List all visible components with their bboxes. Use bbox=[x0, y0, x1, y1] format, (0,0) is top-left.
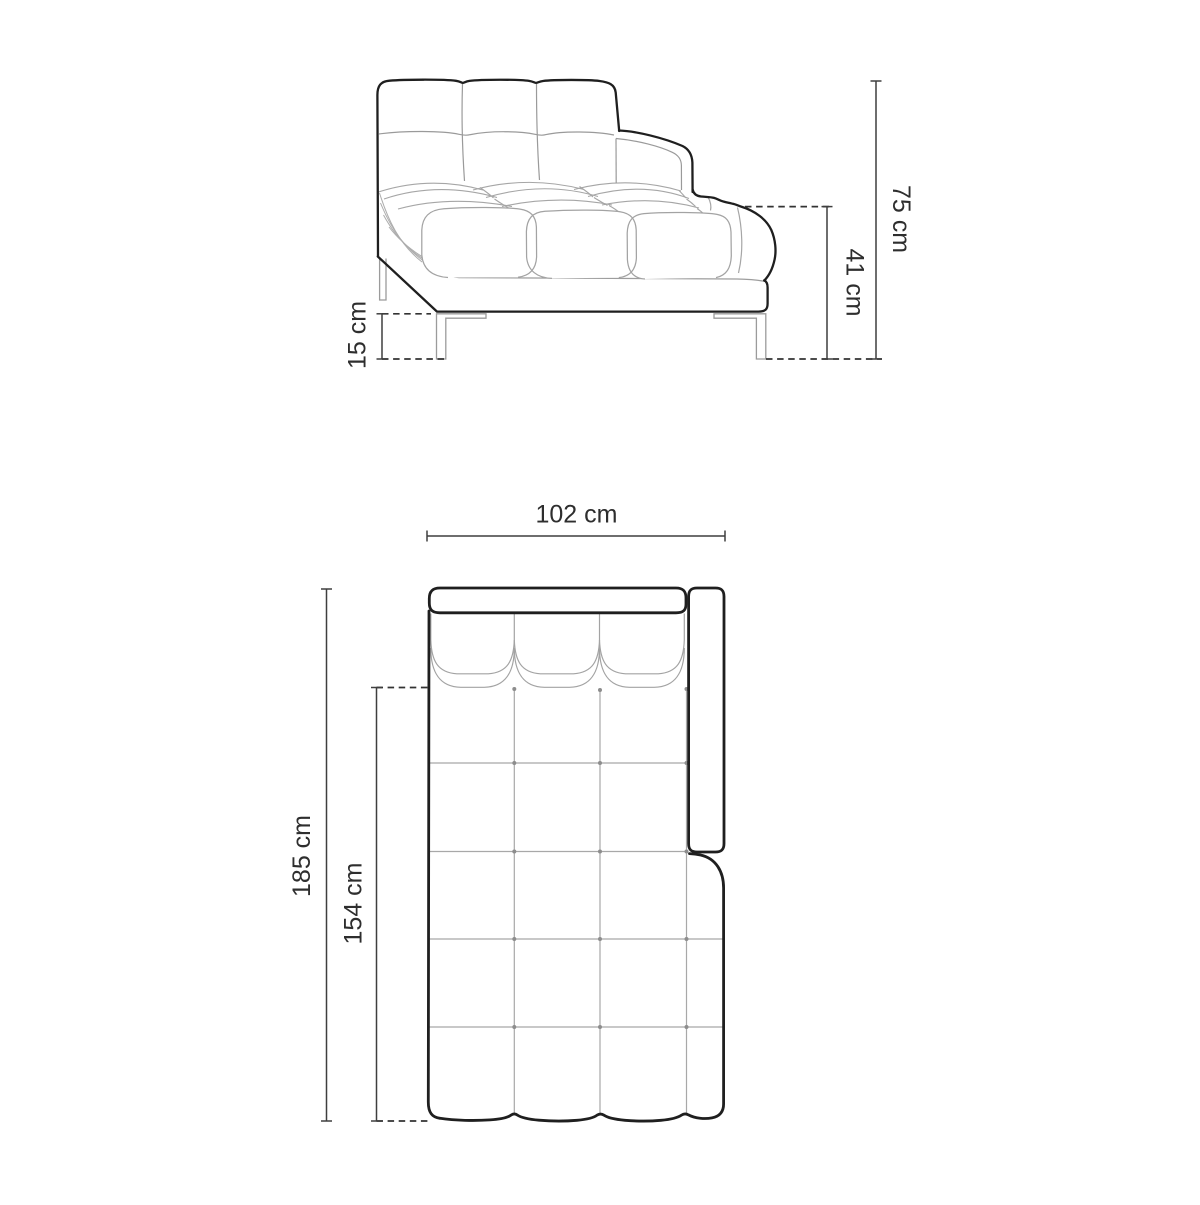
svg-text:185 cm: 185 cm bbox=[288, 815, 316, 897]
svg-text:102 cm: 102 cm bbox=[536, 501, 618, 529]
svg-text:154 cm: 154 cm bbox=[340, 863, 368, 945]
svg-text:15 cm: 15 cm bbox=[344, 301, 372, 369]
svg-text:41 cm: 41 cm bbox=[841, 248, 869, 316]
svg-text:75 cm: 75 cm bbox=[887, 185, 915, 253]
